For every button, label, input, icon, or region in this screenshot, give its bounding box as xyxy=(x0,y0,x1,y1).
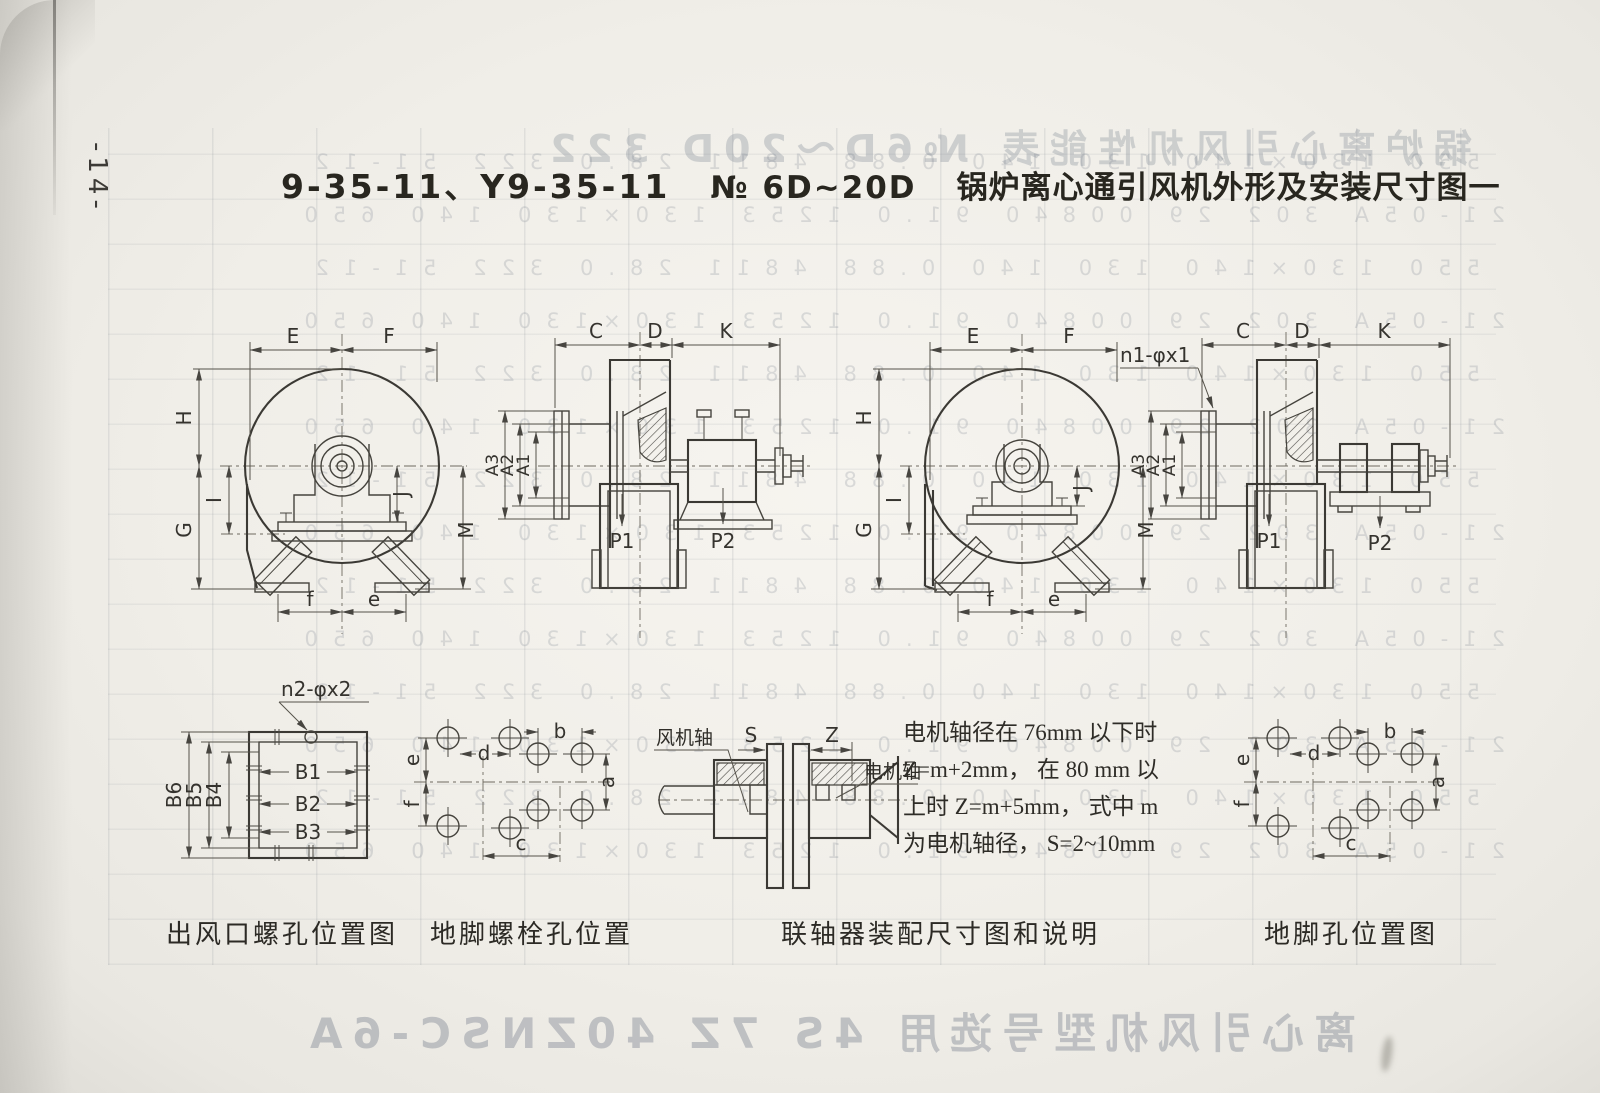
note-line: Z=m+2mm， 在 80 mm 以 xyxy=(903,751,1183,788)
dim-label-K: K xyxy=(719,319,733,343)
foundation-bolt-diagram-left: e f d b a c xyxy=(398,686,626,884)
dim-label-B2: B2 xyxy=(295,792,321,816)
coupling-note: 电机轴径在 76mm 以下时 Z=m+2mm， 在 80 mm 以 上时 Z=m… xyxy=(903,714,1183,862)
title-name: 锅炉离心通引风机外形及安装尺寸图一 xyxy=(957,162,1501,207)
dim-label-S: S xyxy=(745,723,758,747)
caption-foundation-holes: 地脚孔位置图 xyxy=(1264,914,1438,951)
caption-coupling: 联轴器装配尺寸图和说明 xyxy=(781,914,1100,951)
dim-label-G: G xyxy=(852,522,876,538)
hole-label-n2: n2-φx2 xyxy=(281,677,351,701)
dim-label-c: c xyxy=(1346,831,1357,855)
title-size-range: № 6D~20D xyxy=(710,170,916,206)
fan-front-view-left: E F H G I J M f e xyxy=(165,298,510,650)
dimension-lines: C D K A3 A2 A1 P1 P2 xyxy=(483,319,780,553)
bolt-holes xyxy=(1259,719,1431,847)
dim-label-B3: B3 xyxy=(295,820,321,844)
dimension-lines: E F H G I J M f e xyxy=(172,324,478,622)
dim-label-e: e xyxy=(400,754,424,766)
load-label-P1: P1 xyxy=(1257,529,1282,553)
hole-label-n1: n1-φx1 xyxy=(1120,343,1190,367)
ghost-headline-bottom: 离心引风机型号选用 4S 7Z 40ZNSC-6A xyxy=(300,1000,1356,1061)
dim-label-f: f xyxy=(986,587,994,611)
dim-label-H: H xyxy=(172,410,196,425)
dim-label-D: D xyxy=(1294,319,1309,343)
dim-label-H: H xyxy=(852,410,876,425)
dim-label-B1: B1 xyxy=(295,760,321,784)
scan-smudge xyxy=(1380,1035,1395,1072)
note-line: 电机轴径在 76mm 以下时 xyxy=(903,714,1183,751)
bearing-pedestal-unit xyxy=(1317,444,1447,512)
dim-label-F: F xyxy=(1063,324,1075,348)
outlet-flange-diagram: n2-φx2 B1 B2 B3 B6 B5 xyxy=(163,676,403,894)
dim-label-J: J xyxy=(389,491,413,499)
inlet-flange xyxy=(554,411,610,519)
dim-label-C: C xyxy=(1236,319,1250,343)
coupling-left-half xyxy=(714,744,783,888)
dimension-lines: E F H G I J M f e xyxy=(852,324,1158,622)
fan-casing-side xyxy=(1257,360,1317,548)
caption-outlet-flange: 出风口螺孔位置图 xyxy=(166,914,398,951)
dim-label-f: f xyxy=(306,587,314,611)
note-line: 为电机轴径， S=2~10mm xyxy=(903,825,1183,862)
dim-label-A1: A1 xyxy=(1160,454,1180,476)
dim-label-I: I xyxy=(882,497,906,503)
dim-label-b: b xyxy=(1384,719,1397,743)
note-line: 上时 Z=m+5mm， 式中 m xyxy=(903,788,1183,825)
dim-label-C: C xyxy=(589,319,603,343)
dim-label-I: I xyxy=(202,497,226,503)
dim-label-M: M xyxy=(454,521,478,538)
dim-label-Z: Z xyxy=(825,723,839,747)
dim-label-e: e xyxy=(1230,754,1254,766)
scan-left-shade xyxy=(0,0,72,1093)
dim-label-G: G xyxy=(172,522,196,538)
fan-shaft-label: 风机轴 xyxy=(656,727,713,749)
dim-label-B4: B4 xyxy=(202,782,226,808)
dim-label-a: a xyxy=(595,776,619,788)
foundation-hole-diagram-right: e f d b a c xyxy=(1228,686,1456,884)
fan-side-view-left: C D K A3 A2 A1 P1 P2 xyxy=(492,298,822,650)
dim-label-e: e xyxy=(368,587,380,611)
scanned-page: 锅炉离心引风机性能表 №6D～20D 322 550 130×140 130 1… xyxy=(0,0,1600,1093)
dim-label-J: J xyxy=(1069,485,1093,493)
leader-labels: 风机轴 电机轴 xyxy=(654,727,921,812)
dim-label-E: E xyxy=(967,324,980,348)
dim-label-d: d xyxy=(1308,741,1321,765)
load-label-P2: P2 xyxy=(1368,531,1393,555)
dim-label-a: a xyxy=(1425,776,1449,788)
bolt-count-callout: n2-φx2 xyxy=(279,677,369,730)
dim-label-c: c xyxy=(516,831,527,855)
dim-label-F: F xyxy=(383,324,395,348)
fan-side-view-right: n1-φx1 xyxy=(1118,298,1463,650)
bearing-unit xyxy=(670,410,803,529)
title-models: 9-35-11、Y9-35-11 xyxy=(281,160,670,208)
page-number: -14- xyxy=(82,142,112,214)
dim-label-A1: A1 xyxy=(514,454,534,476)
page-title: 9-35-11、Y9-35-11 № 6D~20D 锅炉离心通引风机外形及安装尺… xyxy=(281,160,1501,208)
dim-label-d: d xyxy=(478,741,491,765)
load-label-P2: P2 xyxy=(711,529,736,553)
ghost-row: 550 130×140 130 140 0.88 4811 28.0 322 5… xyxy=(130,256,1480,280)
dim-label-b: b xyxy=(554,719,567,743)
dim-label-K: K xyxy=(1377,319,1391,343)
impeller-hatch xyxy=(638,408,666,462)
dim-label-f: f xyxy=(400,800,424,808)
bolt-count-callout: n1-φx1 xyxy=(1120,343,1213,408)
dim-label-e: e xyxy=(1048,587,1060,611)
dim-label-D: D xyxy=(647,319,662,343)
caption-foundation-bolts: 地脚螺栓孔位置 xyxy=(430,914,633,951)
coupling-assembly-diagram: S Z 风机轴 电机轴 xyxy=(652,686,920,900)
dim-label-E: E xyxy=(287,324,300,348)
impeller-hatch xyxy=(1285,408,1313,462)
dim-label-f: f xyxy=(1230,800,1254,808)
load-label-P1: P1 xyxy=(610,529,635,553)
outlet-duct xyxy=(592,484,686,588)
bolt-holes xyxy=(429,719,601,847)
coupling-right-half xyxy=(793,744,870,888)
inlet-flange xyxy=(1201,411,1257,519)
page-spine-shadow xyxy=(53,0,56,215)
